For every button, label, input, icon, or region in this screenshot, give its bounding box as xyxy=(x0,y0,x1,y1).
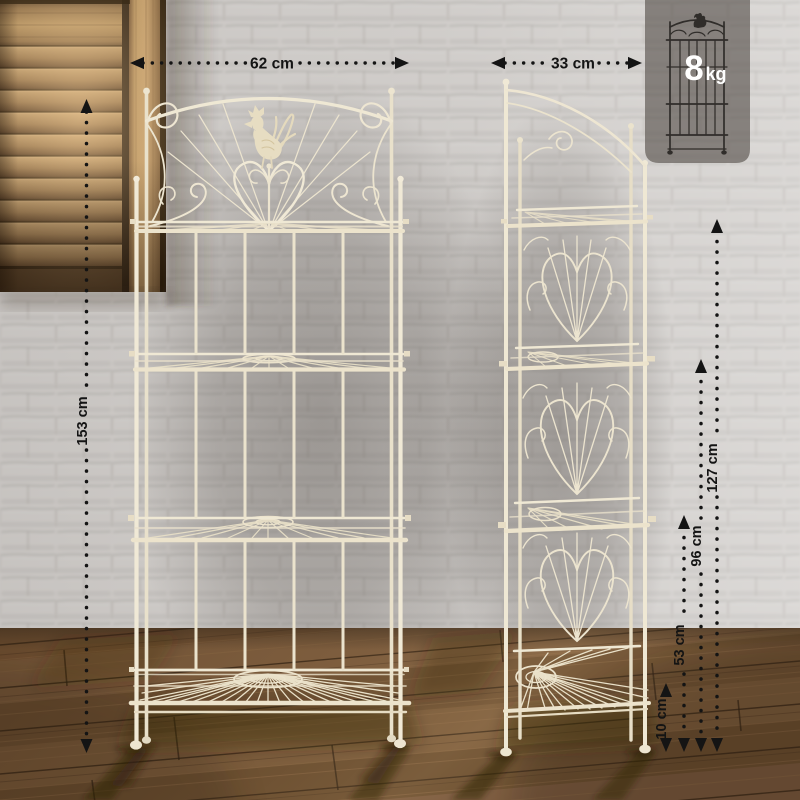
svg-text:96 cm: 96 cm xyxy=(689,525,705,566)
svg-text:153 cm: 153 cm xyxy=(75,396,91,445)
svg-text:127 cm: 127 cm xyxy=(705,443,721,492)
svg-text:10 cm: 10 cm xyxy=(654,698,670,739)
svg-text:8: 8 xyxy=(684,49,703,88)
svg-text:62 cm: 62 cm xyxy=(250,56,294,73)
svg-text:53 cm: 53 cm xyxy=(672,624,688,665)
svg-text:33 cm: 33 cm xyxy=(551,56,595,73)
svg-text:kg: kg xyxy=(705,64,726,84)
